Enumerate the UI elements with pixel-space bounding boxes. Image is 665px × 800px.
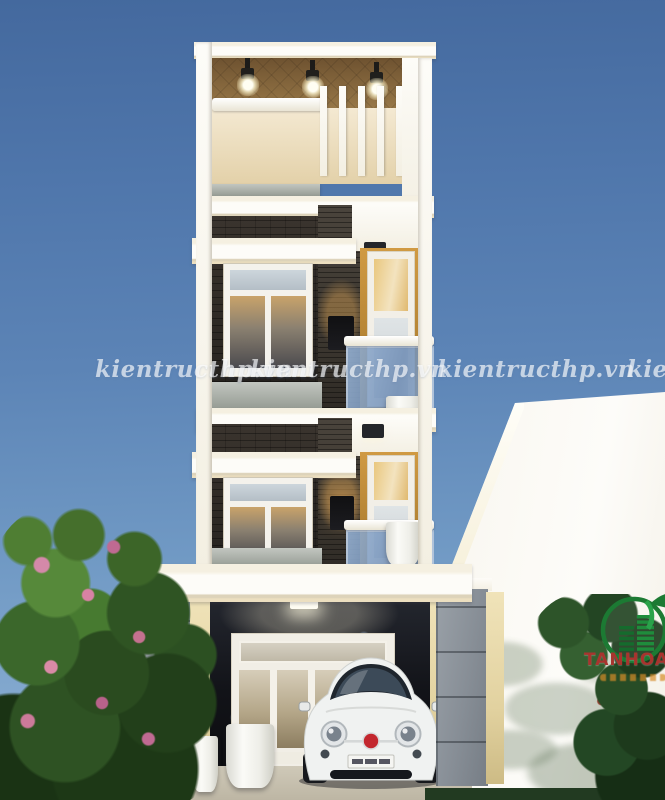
terrace-plants [202, 164, 302, 200]
car [296, 650, 446, 790]
entry-plant [206, 644, 296, 732]
floor2-eyebrow-slab [192, 452, 356, 478]
floor3-balcony-header [352, 205, 422, 251]
terrace-fin [320, 86, 327, 176]
building-right-edge [418, 58, 432, 572]
brand-name: TANHOANG [584, 650, 665, 670]
door-glass-top [374, 259, 408, 311]
architectural-render: TANHOANG kientructhp.vn kientructhp.vn k… [0, 0, 665, 800]
brand-logo-text: TANHOANG [584, 650, 665, 670]
pendant-light-glow [237, 74, 259, 96]
left-tree-flowers [0, 505, 218, 800]
window-transom [230, 484, 306, 501]
floor3-eyebrow-slab [192, 238, 356, 264]
terrace-fin [339, 86, 346, 176]
roof-slab [194, 42, 436, 59]
left-tree-overhang [118, 556, 192, 652]
brand-tagline [600, 674, 665, 681]
plant-pot [226, 724, 274, 788]
floor2-flush-light [362, 424, 384, 438]
side-fence-wall [486, 592, 504, 784]
window-transom [230, 270, 306, 290]
watermark: kientructhp.vn [437, 355, 635, 385]
watermark: kientructhp.vn [250, 355, 448, 385]
terrace-rail-beam [212, 98, 324, 111]
watermark: kientructhp.vn [627, 355, 665, 385]
building-left-edge [196, 42, 212, 572]
gate-pillar-right [436, 589, 488, 786]
